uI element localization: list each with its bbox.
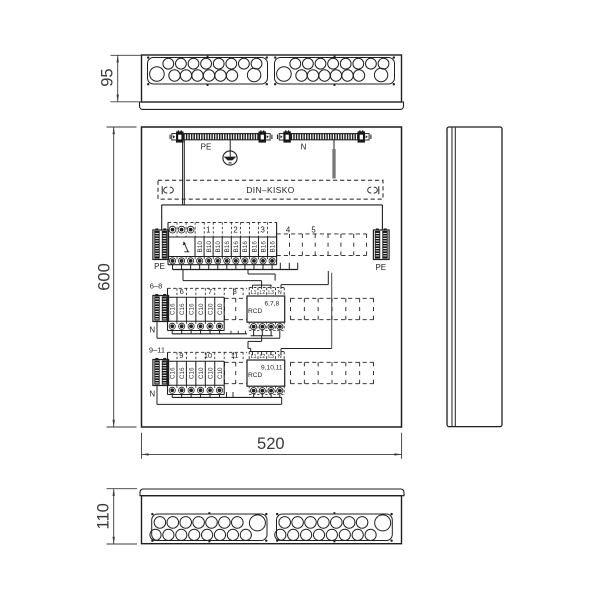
svg-text:7: 7 (208, 287, 212, 296)
svg-text:6: 6 (180, 287, 184, 296)
svg-text:600: 600 (96, 263, 114, 291)
svg-text:9–11: 9–11 (149, 346, 165, 355)
svg-text:C16: C16 (188, 303, 195, 315)
svg-text:C16: C16 (170, 367, 177, 379)
svg-text:3: 3 (261, 226, 265, 235)
svg-text:5: 5 (311, 226, 316, 235)
svg-text:B16: B16 (269, 241, 276, 253)
svg-text:PE: PE (375, 263, 386, 272)
svg-text:9: 9 (179, 351, 183, 360)
svg-text:110: 110 (95, 503, 113, 529)
svg-text:B10: B10 (206, 241, 213, 253)
svg-text:B16: B16 (242, 241, 249, 253)
svg-text:C10: C10 (207, 367, 214, 379)
svg-text:B16: B16 (260, 241, 267, 253)
svg-text:L3: L3 (268, 354, 274, 360)
svg-text:L1: L1 (251, 290, 257, 296)
svg-text:B10: B10 (215, 241, 222, 253)
svg-text:C16: C16 (179, 367, 186, 379)
svg-text:PE: PE (154, 262, 165, 271)
svg-text:L1: L1 (251, 354, 257, 360)
svg-text:B16: B16 (251, 241, 258, 253)
svg-text:6–8: 6–8 (150, 282, 163, 291)
svg-text:DIN–KISKO: DIN–KISKO (246, 185, 294, 195)
svg-text:N: N (149, 389, 155, 398)
svg-text:95: 95 (98, 68, 116, 86)
svg-text:L2: L2 (259, 354, 265, 360)
svg-text:PE: PE (201, 143, 212, 152)
svg-text:6,7,8: 6,7,8 (264, 301, 279, 308)
svg-text:C10: C10 (217, 367, 224, 379)
svg-text:C16: C16 (170, 303, 177, 315)
svg-text:B10: B10 (197, 241, 204, 253)
svg-text:C10: C10 (217, 303, 224, 315)
svg-text:10: 10 (204, 351, 212, 360)
svg-text:520: 520 (257, 435, 285, 453)
svg-text:RCD: RCD (248, 308, 263, 315)
svg-text:N: N (278, 354, 282, 360)
svg-text:8: 8 (233, 287, 237, 296)
svg-text:2: 2 (233, 226, 237, 235)
svg-text:C16: C16 (179, 303, 186, 315)
svg-text:L3: L3 (268, 290, 274, 296)
svg-text:C10: C10 (198, 367, 205, 379)
svg-text:B16: B16 (233, 241, 240, 253)
svg-text:RCD: RCD (248, 372, 263, 379)
svg-text:C10: C10 (207, 303, 214, 315)
svg-text:L2: L2 (259, 290, 265, 296)
svg-text:4: 4 (286, 226, 291, 235)
svg-text:N: N (278, 290, 282, 296)
svg-text:C10: C10 (198, 303, 205, 315)
svg-text:C16: C16 (188, 367, 195, 379)
svg-text:N: N (149, 325, 155, 334)
svg-text:9,10,11: 9,10,11 (261, 365, 283, 372)
svg-text:B16: B16 (224, 241, 231, 253)
svg-text:N: N (301, 143, 307, 152)
svg-text:1: 1 (206, 226, 210, 235)
svg-text:11: 11 (231, 351, 239, 360)
